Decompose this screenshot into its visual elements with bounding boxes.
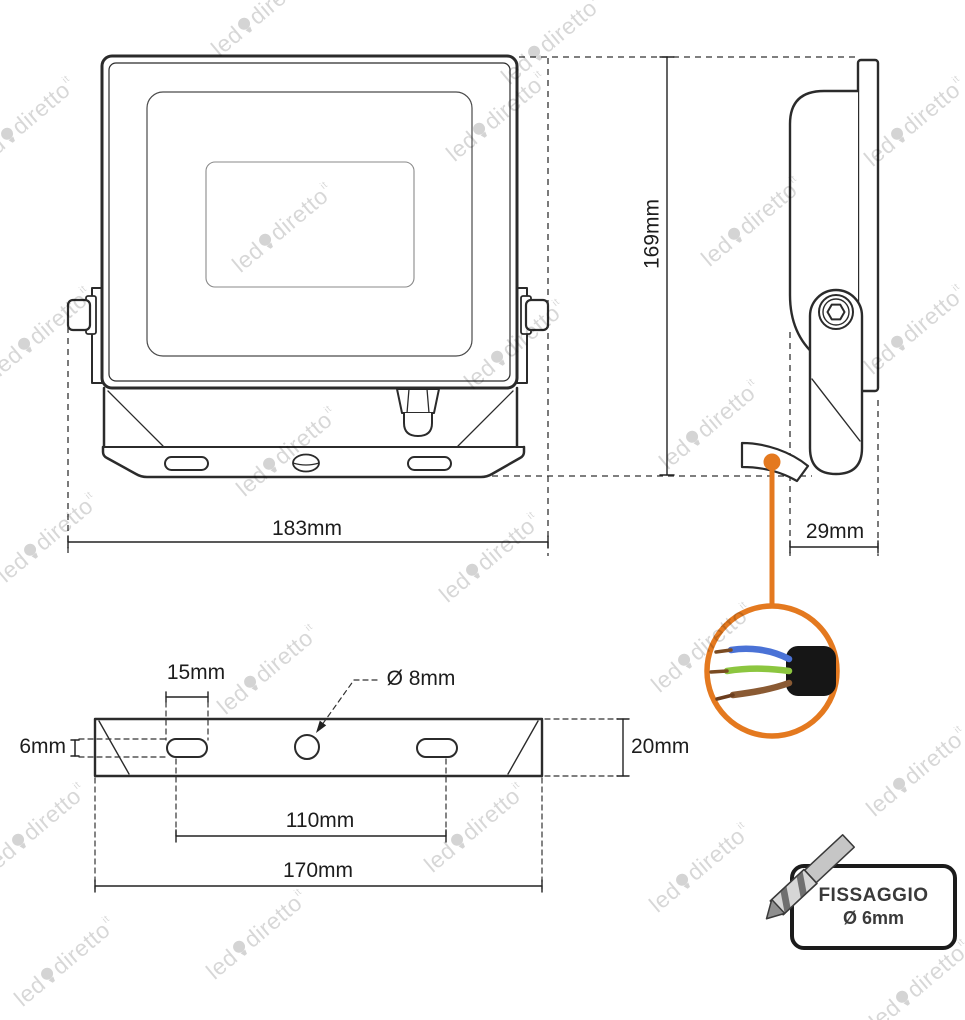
- front-lower-housing: [103, 388, 524, 477]
- dim-label-bracket-depth: 29mm: [765, 519, 905, 544]
- dim-tick-6: [71, 740, 79, 756]
- dim-label-total-width: 170mm: [248, 858, 388, 883]
- dim-label-plate-thickness: 20mm: [631, 734, 689, 759]
- left-mount-knob: [68, 288, 102, 383]
- drill-bit-icon: [735, 820, 865, 930]
- side-view: [742, 60, 878, 481]
- technical-drawing-page: 183mm 169mm 29mm 15mm Ø 8mm 6mm 20mm 110…: [0, 0, 965, 1020]
- hinge-bolt: [819, 295, 853, 329]
- dim-label-side-height: 169mm: [640, 199, 665, 269]
- dim-line-20: [617, 719, 629, 776]
- front-slot-right: [408, 457, 451, 470]
- dim-label-hole-spacing: 110mm: [250, 808, 390, 833]
- cable-gland: [397, 389, 439, 436]
- cable-detail-callout: [707, 468, 837, 736]
- dim-label-hole-diameter: Ø 8mm: [361, 666, 481, 691]
- dim-label-slot-length: 15mm: [136, 660, 256, 685]
- dim-label-slot-width: 6mm: [0, 734, 66, 759]
- front-center-hole: [293, 455, 319, 472]
- cable-exit-marker: [764, 454, 781, 471]
- front-slot-left: [165, 457, 208, 470]
- right-mount-knob: [517, 288, 548, 383]
- front-frame-outer: [102, 56, 517, 388]
- dim-label-front-width: 183mm: [237, 516, 377, 541]
- front-view: [68, 56, 548, 477]
- dim-line-15: [166, 692, 208, 702]
